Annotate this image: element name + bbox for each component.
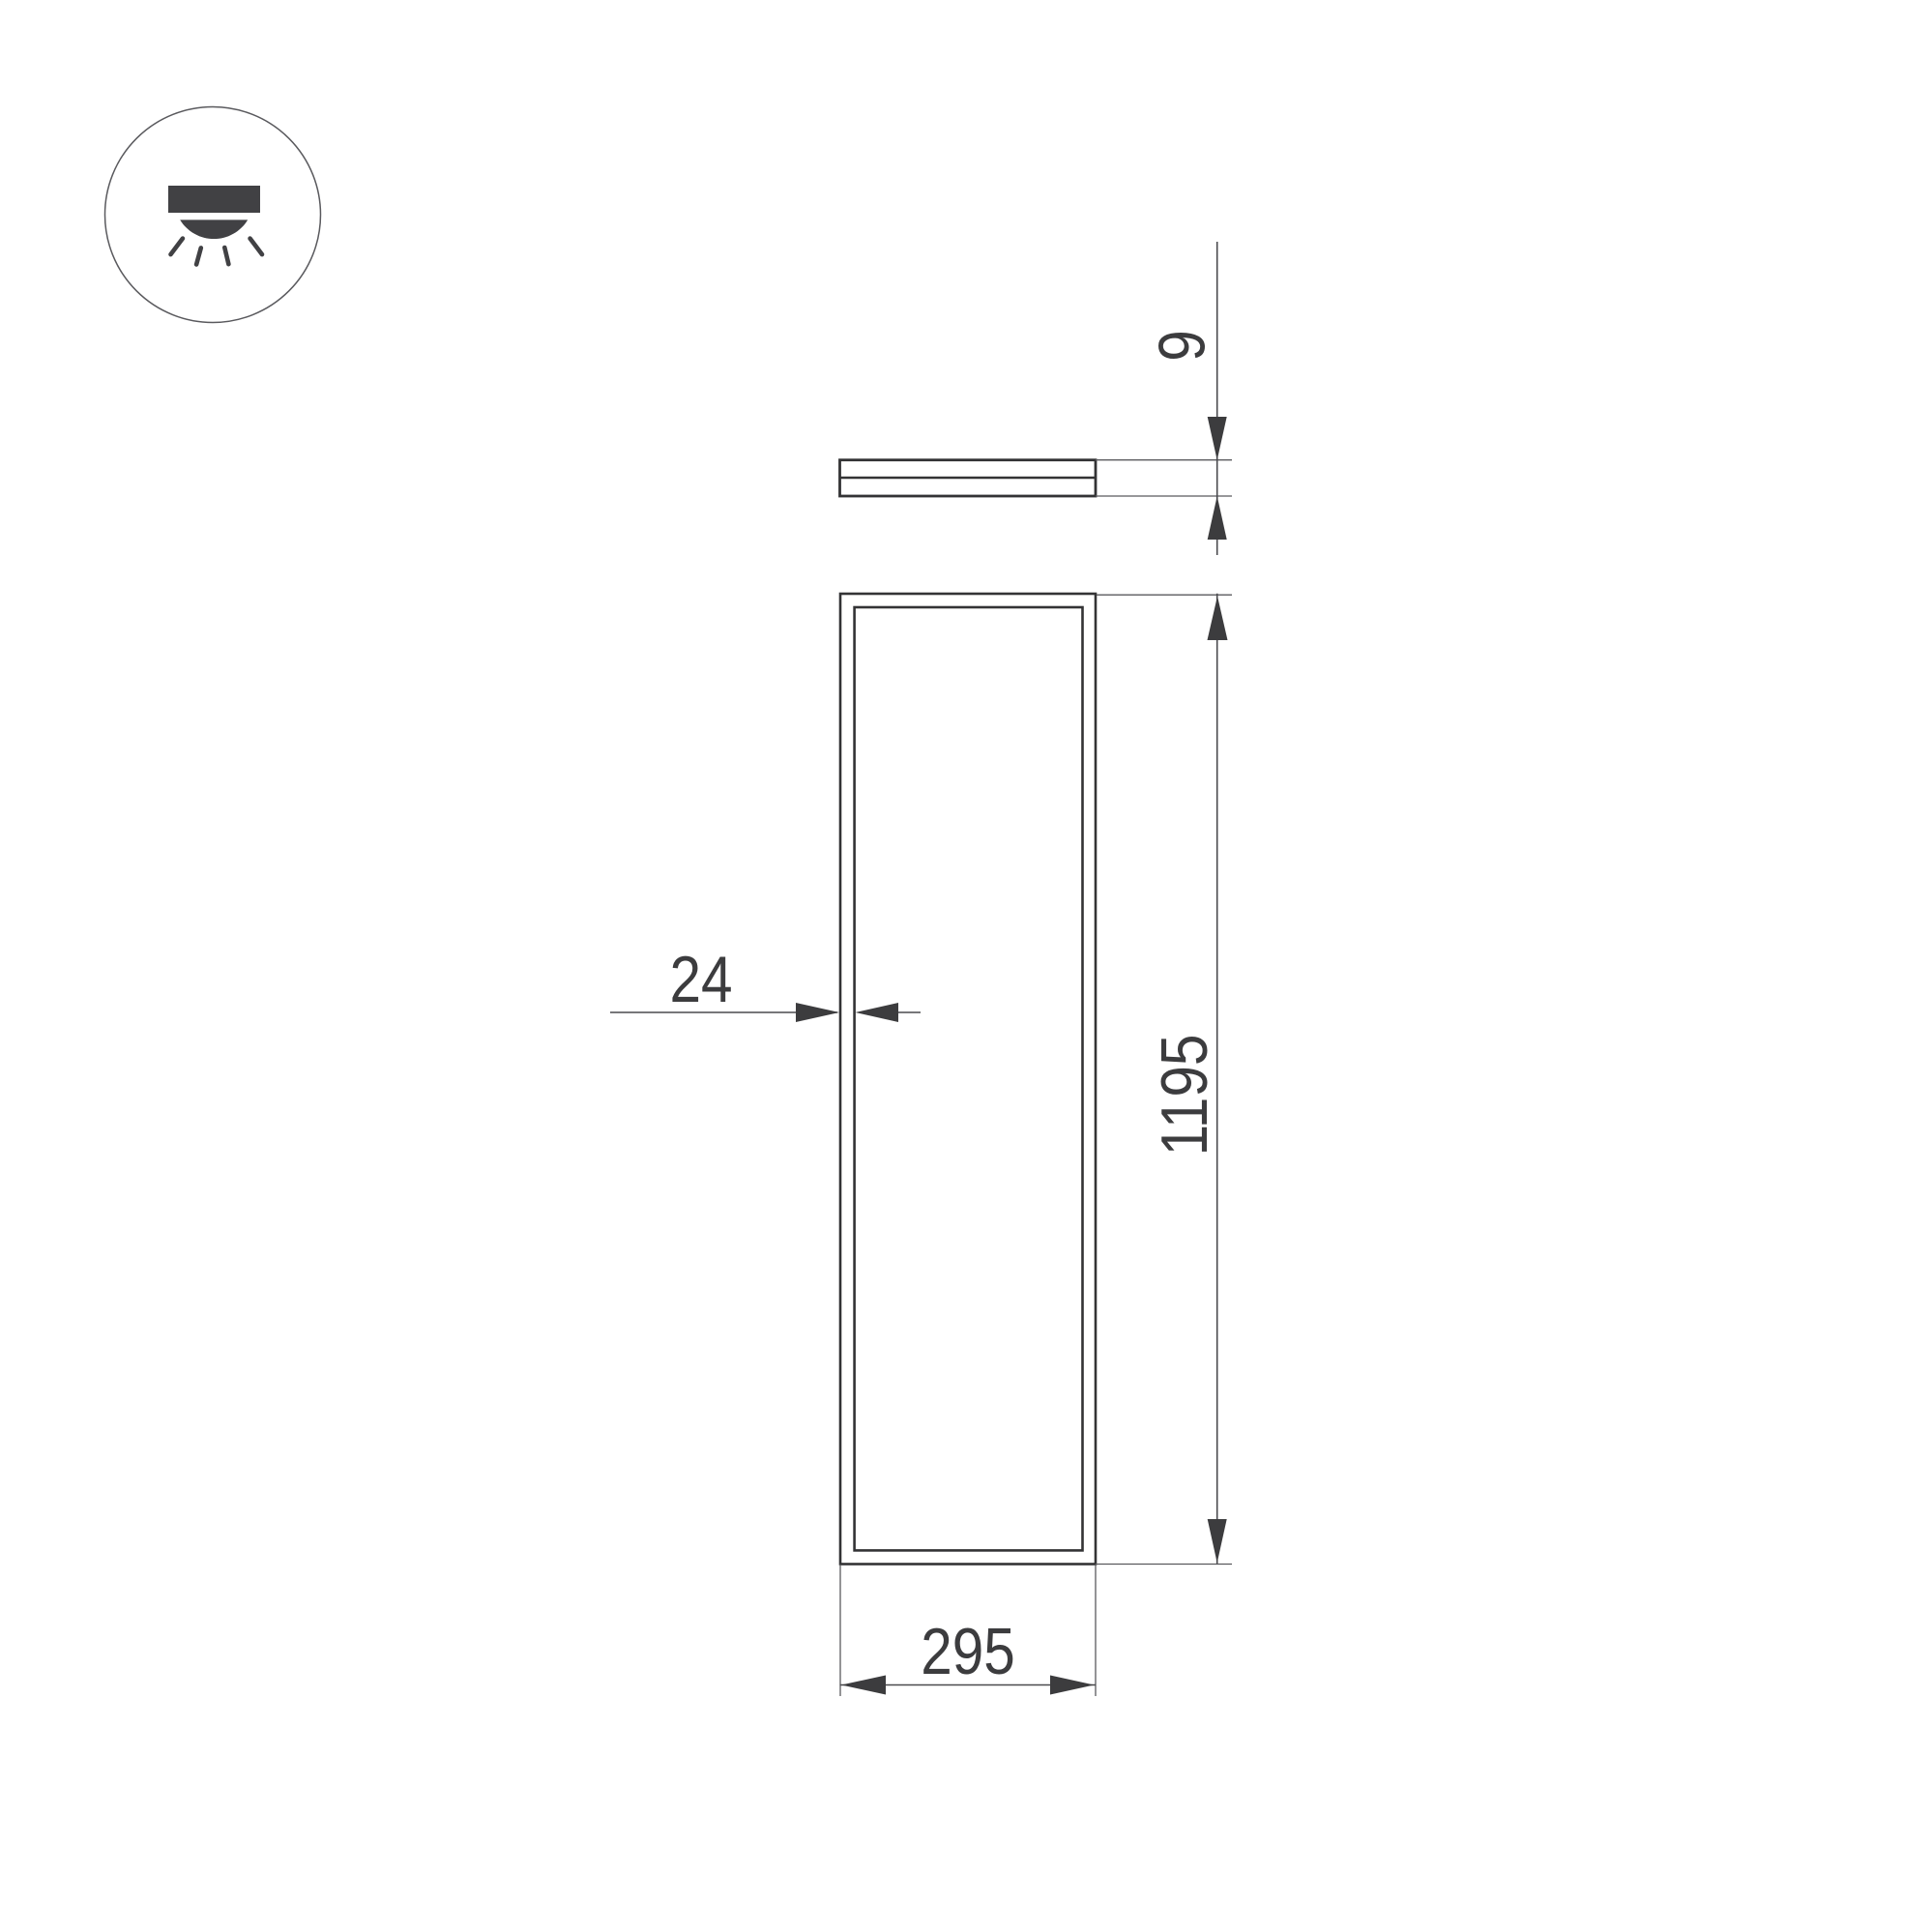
svg-text:1195: 1195 <box>1149 1035 1221 1156</box>
svg-text:295: 295 <box>921 1616 1015 1688</box>
svg-text:24: 24 <box>669 944 732 1016</box>
svg-text:9: 9 <box>1146 330 1218 362</box>
